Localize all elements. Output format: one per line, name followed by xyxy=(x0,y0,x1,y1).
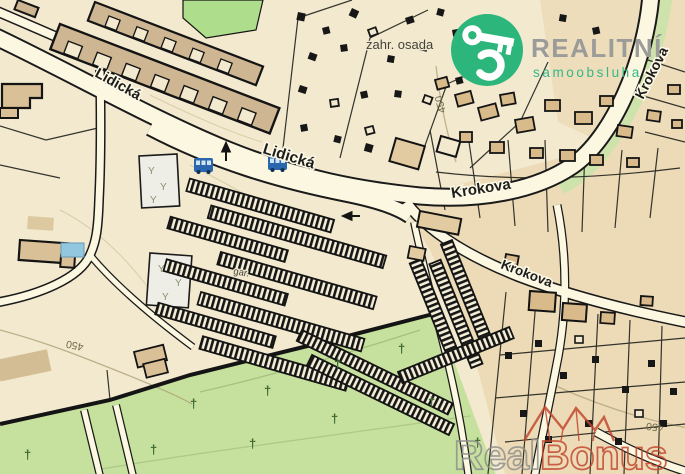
map-screenshot: Y Y Y Y Y Y xyxy=(0,0,685,474)
svg-text:†: † xyxy=(331,411,338,426)
svg-text:Y: Y xyxy=(175,278,182,289)
map-canvas[interactable]: Y Y Y Y Y Y xyxy=(0,0,685,474)
svg-text:†: † xyxy=(428,394,435,409)
bus-stop-icon xyxy=(194,158,213,174)
svg-text:Y: Y xyxy=(162,292,169,303)
watermark-text-bonus: Bonus xyxy=(540,432,668,474)
svg-text:†: † xyxy=(150,442,157,457)
cross-symbol: † xyxy=(190,396,197,411)
svg-text:†: † xyxy=(24,447,31,462)
svg-text:Y: Y xyxy=(160,182,167,193)
svg-text:†: † xyxy=(249,436,256,451)
tree-symbol: Y xyxy=(148,166,155,177)
svg-text:Y: Y xyxy=(150,195,157,206)
water-reservoir xyxy=(61,243,84,257)
watermark-text-real: Real xyxy=(454,432,541,474)
logo-brand-text: REALITNÍ xyxy=(531,33,663,63)
svg-text:†: † xyxy=(264,383,271,398)
svg-text:†: † xyxy=(334,356,341,371)
svg-text:†: † xyxy=(398,341,405,356)
label-garden-settlement: zahr. osada xyxy=(366,37,434,52)
logo-tagline-text: samoobsluha xyxy=(533,65,642,80)
